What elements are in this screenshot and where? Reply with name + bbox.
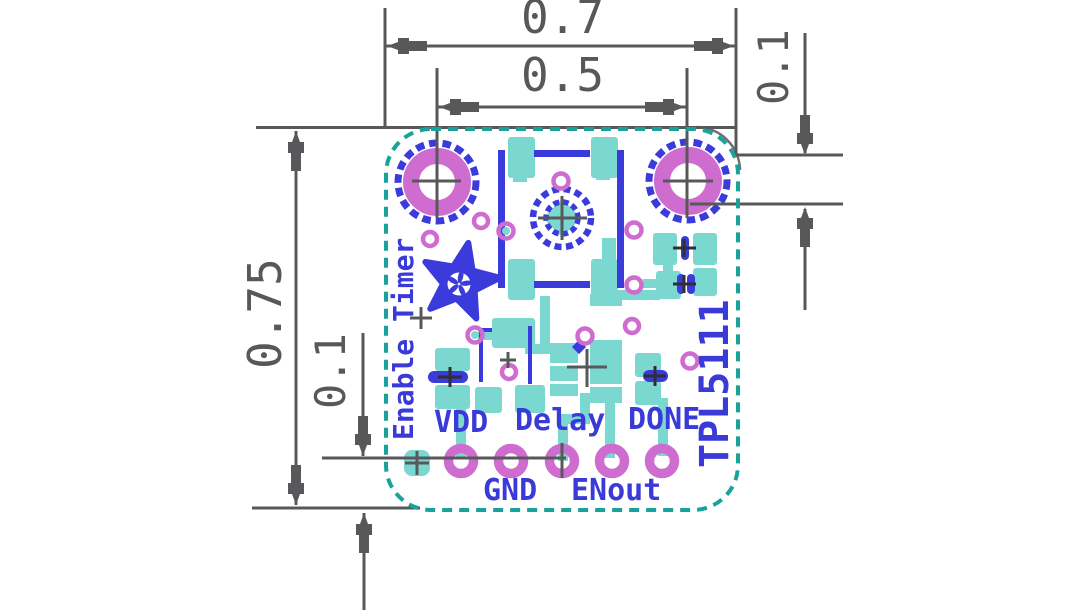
pin-label-vdd: VDD bbox=[434, 408, 488, 438]
pin-label-gnd: GND bbox=[483, 476, 537, 506]
smd-pad bbox=[693, 233, 717, 265]
button-outline-top bbox=[534, 150, 590, 157]
button-outline-left bbox=[498, 150, 505, 288]
via-fill bbox=[502, 227, 510, 235]
smd-pad bbox=[596, 166, 610, 180]
dimension-arrow bbox=[645, 99, 685, 115]
dim-hole-spacing-label: 0.5 bbox=[521, 52, 604, 98]
dimension-arrow bbox=[356, 513, 372, 553]
dimension-arrow bbox=[355, 416, 371, 456]
smd-pad bbox=[508, 259, 535, 300]
dimension-arrow bbox=[288, 465, 304, 505]
smd-pad bbox=[591, 259, 618, 300]
dim-board-height-label: 0.75 bbox=[242, 258, 288, 369]
dimension-arrow bbox=[797, 207, 813, 247]
pin-label-done: DONE bbox=[628, 405, 700, 435]
pin-label-enout: ENout bbox=[571, 476, 661, 506]
dimension-arrow bbox=[439, 99, 479, 115]
smd-pad bbox=[550, 384, 578, 396]
dimension-arrow bbox=[288, 131, 304, 171]
smd-pad bbox=[513, 170, 527, 182]
dim-board-width-label: 0.7 bbox=[521, 0, 604, 40]
dimension-arrow bbox=[797, 115, 813, 155]
smd-pad bbox=[693, 268, 717, 296]
dimension-arrow bbox=[387, 38, 427, 54]
smd-pad bbox=[602, 238, 616, 262]
button-outline-bottom bbox=[534, 281, 590, 288]
smd-pad bbox=[435, 348, 470, 371]
smd-pad bbox=[590, 340, 622, 384]
copper-trace bbox=[540, 296, 550, 346]
pin-label-delay: Delay bbox=[515, 406, 605, 436]
smd-pad bbox=[590, 387, 622, 403]
dimension-arrow bbox=[694, 38, 734, 54]
silkscreen-chip-label: TPL5111 bbox=[695, 299, 735, 468]
dim-hole-offset-right-label: 0.1 bbox=[753, 29, 795, 105]
fabrication-print: 0.7 0.5 0.1 0.75 0.1 Enable Timer TPL511… bbox=[0, 0, 1080, 610]
via-fill bbox=[471, 331, 479, 339]
cap-outline bbox=[528, 326, 532, 384]
button-outline-right bbox=[617, 150, 624, 288]
silkscreen-enable-timer-label: Enable Timer bbox=[390, 238, 418, 440]
dim-pin-row-offset-label: 0.1 bbox=[310, 333, 352, 409]
